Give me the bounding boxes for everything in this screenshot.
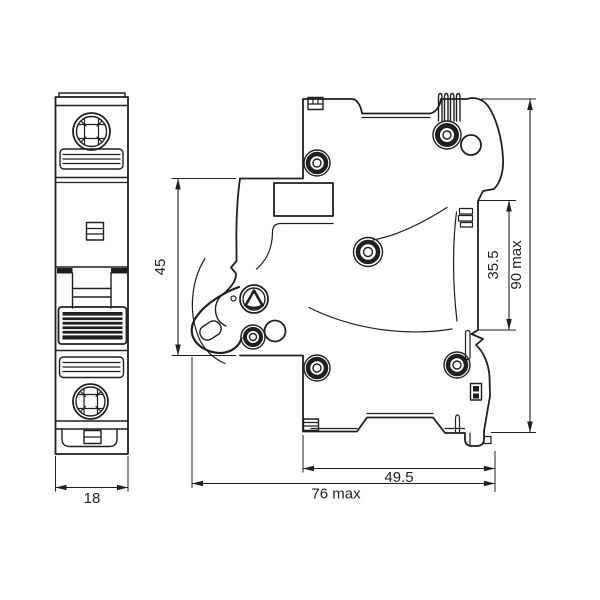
mcb-dimension-drawing: 18 45 35.5 90 max 49.5 76 max xyxy=(0,0,600,600)
rivets xyxy=(231,121,481,381)
pin-hole-icon xyxy=(461,135,481,155)
rivet-icon xyxy=(444,352,470,378)
front-top-terminal-screw-icon xyxy=(73,113,110,150)
internal-contours xyxy=(257,208,458,332)
side-label-window xyxy=(274,183,333,216)
front-bottom-vent xyxy=(60,357,124,378)
front-toggle-handle[interactable] xyxy=(59,307,127,344)
side-body-outline xyxy=(240,98,503,446)
rivet-icon xyxy=(433,121,461,149)
dim-label-90-max: 90 max xyxy=(508,240,525,290)
dim-label-45: 45 xyxy=(152,259,169,276)
dimension-front-width: 18 xyxy=(56,456,129,507)
rivet-icon xyxy=(241,325,265,349)
drawing-canvas: 18 45 35.5 90 max 49.5 76 max xyxy=(0,0,600,600)
front-view xyxy=(56,93,129,454)
front-bottom-terminal-screw-icon xyxy=(73,384,108,419)
dimension-handle-recess-height: 45 xyxy=(152,179,236,356)
rivet-icon xyxy=(304,355,330,381)
rivet-icon xyxy=(304,150,330,176)
rivet-icon xyxy=(354,238,383,267)
rivet-triangle-icon xyxy=(240,285,268,313)
pivot-dot-icon xyxy=(231,296,236,301)
side-view xyxy=(192,94,503,447)
din-claw-teeth xyxy=(459,209,473,228)
side-front-face xyxy=(227,179,240,291)
front-top-vent xyxy=(60,149,123,169)
toggle-swing-arc xyxy=(192,259,225,364)
front-rating-window xyxy=(87,223,104,241)
front-toggle-frame xyxy=(57,268,128,308)
side-toggle-handle[interactable] xyxy=(192,287,242,353)
front-din-clip[interactable] xyxy=(62,429,117,447)
dim-label-35-5: 35.5 xyxy=(485,250,502,279)
pin-hole-icon xyxy=(265,321,286,342)
dim-label-18: 18 xyxy=(84,490,101,507)
dimension-overall-depth: 76 max xyxy=(192,357,495,503)
dim-label-76-max: 76 max xyxy=(311,486,361,503)
side-vent-fins xyxy=(439,94,461,122)
